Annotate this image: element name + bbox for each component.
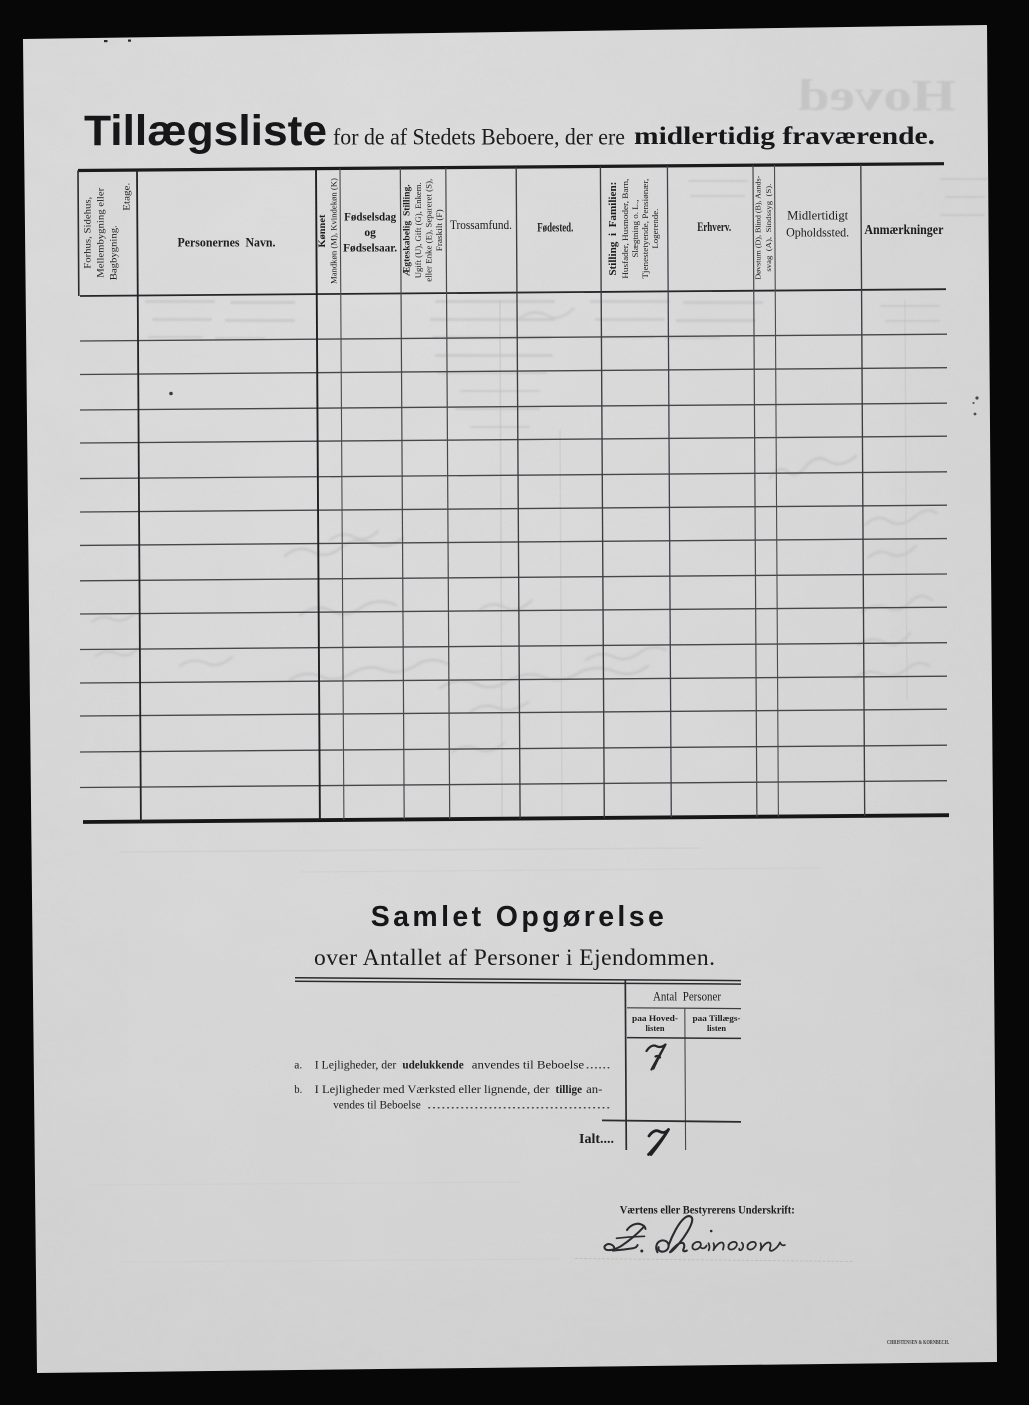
- svg-text:I Lejligheder, der: I Lejligheder, der: [315, 1057, 397, 1071]
- svg-text:Tillægsliste: Tillægsliste: [84, 108, 327, 155]
- svg-text:......: ......: [586, 1057, 611, 1071]
- svg-text:..............................: .......................................: [427, 1097, 611, 1111]
- svg-text:I Lejligheder med Værksted ell: I Lejligheder med Værksted eller lignend…: [315, 1082, 550, 1096]
- svg-text:Trossamfund.: Trossamfund.: [450, 218, 512, 232]
- svg-text:Ugift (U), Gift (G), Enkem.: Ugift (U), Gift (G), Enkem.: [414, 182, 423, 278]
- svg-text:Døvstum (D), Blind (B), Aands-: Døvstum (D), Blind (B), Aands-: [754, 175, 763, 280]
- svg-text:paa Hoved-: paa Hoved-: [632, 1014, 678, 1023]
- svg-text:an-: an-: [586, 1082, 602, 1096]
- svg-text:Mellembygning eller: Mellembygning eller: [97, 187, 107, 278]
- svg-text:Personernes Navn.: Personernes Navn.: [178, 234, 276, 249]
- svg-text:Antal Personer: Antal Personer: [653, 990, 722, 1004]
- svg-text:Fødested.: Fødested.: [537, 220, 573, 235]
- svg-text:anvendes til Beboelse: anvendes til Beboelse: [472, 1057, 584, 1071]
- svg-text:Husfader, Husmoder, Barn,: Husfader, Husmoder, Barn,: [621, 179, 630, 279]
- svg-text:Mandkøn (M), Kvindekøn (K): Mandkøn (M), Kvindekøn (K): [328, 178, 338, 284]
- svg-text:Hoved: Hoved: [798, 71, 956, 120]
- svg-text:over Antallet af Personer i Ej: over Antallet af Personer i Ejendommen.: [314, 945, 715, 971]
- svg-text:tillige: tillige: [556, 1082, 583, 1096]
- svg-text:og: og: [364, 227, 376, 239]
- svg-text:Ialt....: Ialt....: [579, 1131, 614, 1146]
- svg-text:Ægteskabelig Stilling.: Ægteskabelig Stilling.: [401, 184, 411, 276]
- svg-text:Opholdssted.: Opholdssted.: [786, 226, 849, 240]
- svg-text:Kønnet: Kønnet: [318, 214, 328, 248]
- svg-text:Erhverv.: Erhverv.: [697, 219, 731, 234]
- svg-text:paa Tillægs-: paa Tillægs-: [693, 1014, 741, 1023]
- svg-text:Fødselsdag: Fødselsdag: [344, 212, 396, 224]
- svg-text:Midlertidigt: Midlertidigt: [787, 209, 849, 223]
- svg-text:Tjenestetyende, Pensiønær,: Tjenestetyende, Pensiønær,: [641, 179, 650, 279]
- svg-text:Logerende.: Logerende.: [651, 209, 660, 249]
- svg-text:Etage.: Etage.: [123, 183, 133, 211]
- svg-text:svag (A), Sindssyg (S).: svag (A), Sindssyg (S).: [764, 184, 773, 272]
- svg-text:b.: b.: [294, 1082, 302, 1096]
- svg-text:Stilling i Familien:: Stilling i Familien:: [608, 182, 619, 276]
- svg-text:Fraskilt (F): Fraskilt (F): [435, 209, 444, 251]
- svg-text:for de af Stedets Beboere, der: for de af Stedets Beboere, der ere: [333, 125, 625, 151]
- svg-text:listen: listen: [645, 1024, 664, 1033]
- svg-text:Fødselsaar.: Fødselsaar.: [343, 243, 397, 255]
- svg-text:Værtens eller Bestyrerens Unde: Værtens eller Bestyrerens Underskrift:: [620, 1205, 795, 1217]
- svg-text:Forhus, Sidehus,: Forhus, Sidehus,: [84, 197, 94, 269]
- svg-text:eller Enke (E), Separeret (S),: eller Enke (E), Separeret (S),: [424, 179, 433, 282]
- svg-text:udelukkende: udelukkende: [402, 1057, 464, 1071]
- svg-text:Bagbygning.: Bagbygning.: [110, 225, 120, 280]
- svg-text:Samlet Opgørelse: Samlet Opgørelse: [371, 901, 665, 933]
- svg-text:a.: a.: [294, 1057, 302, 1071]
- svg-text:Anmærkninger: Anmærkninger: [864, 222, 943, 237]
- svg-text:CHRISTENSEN & KORNBECH.: CHRISTENSEN & KORNBECH.: [887, 1339, 949, 1346]
- svg-text:Slægtning o. L.,: Slægtning o. L.,: [631, 200, 640, 258]
- svg-text:vendes til Beboelse: vendes til Beboelse: [333, 1097, 421, 1111]
- svg-text:listen: listen: [707, 1024, 726, 1033]
- svg-text:midlertidig fraværende.: midlertidig fraværende.: [634, 123, 935, 150]
